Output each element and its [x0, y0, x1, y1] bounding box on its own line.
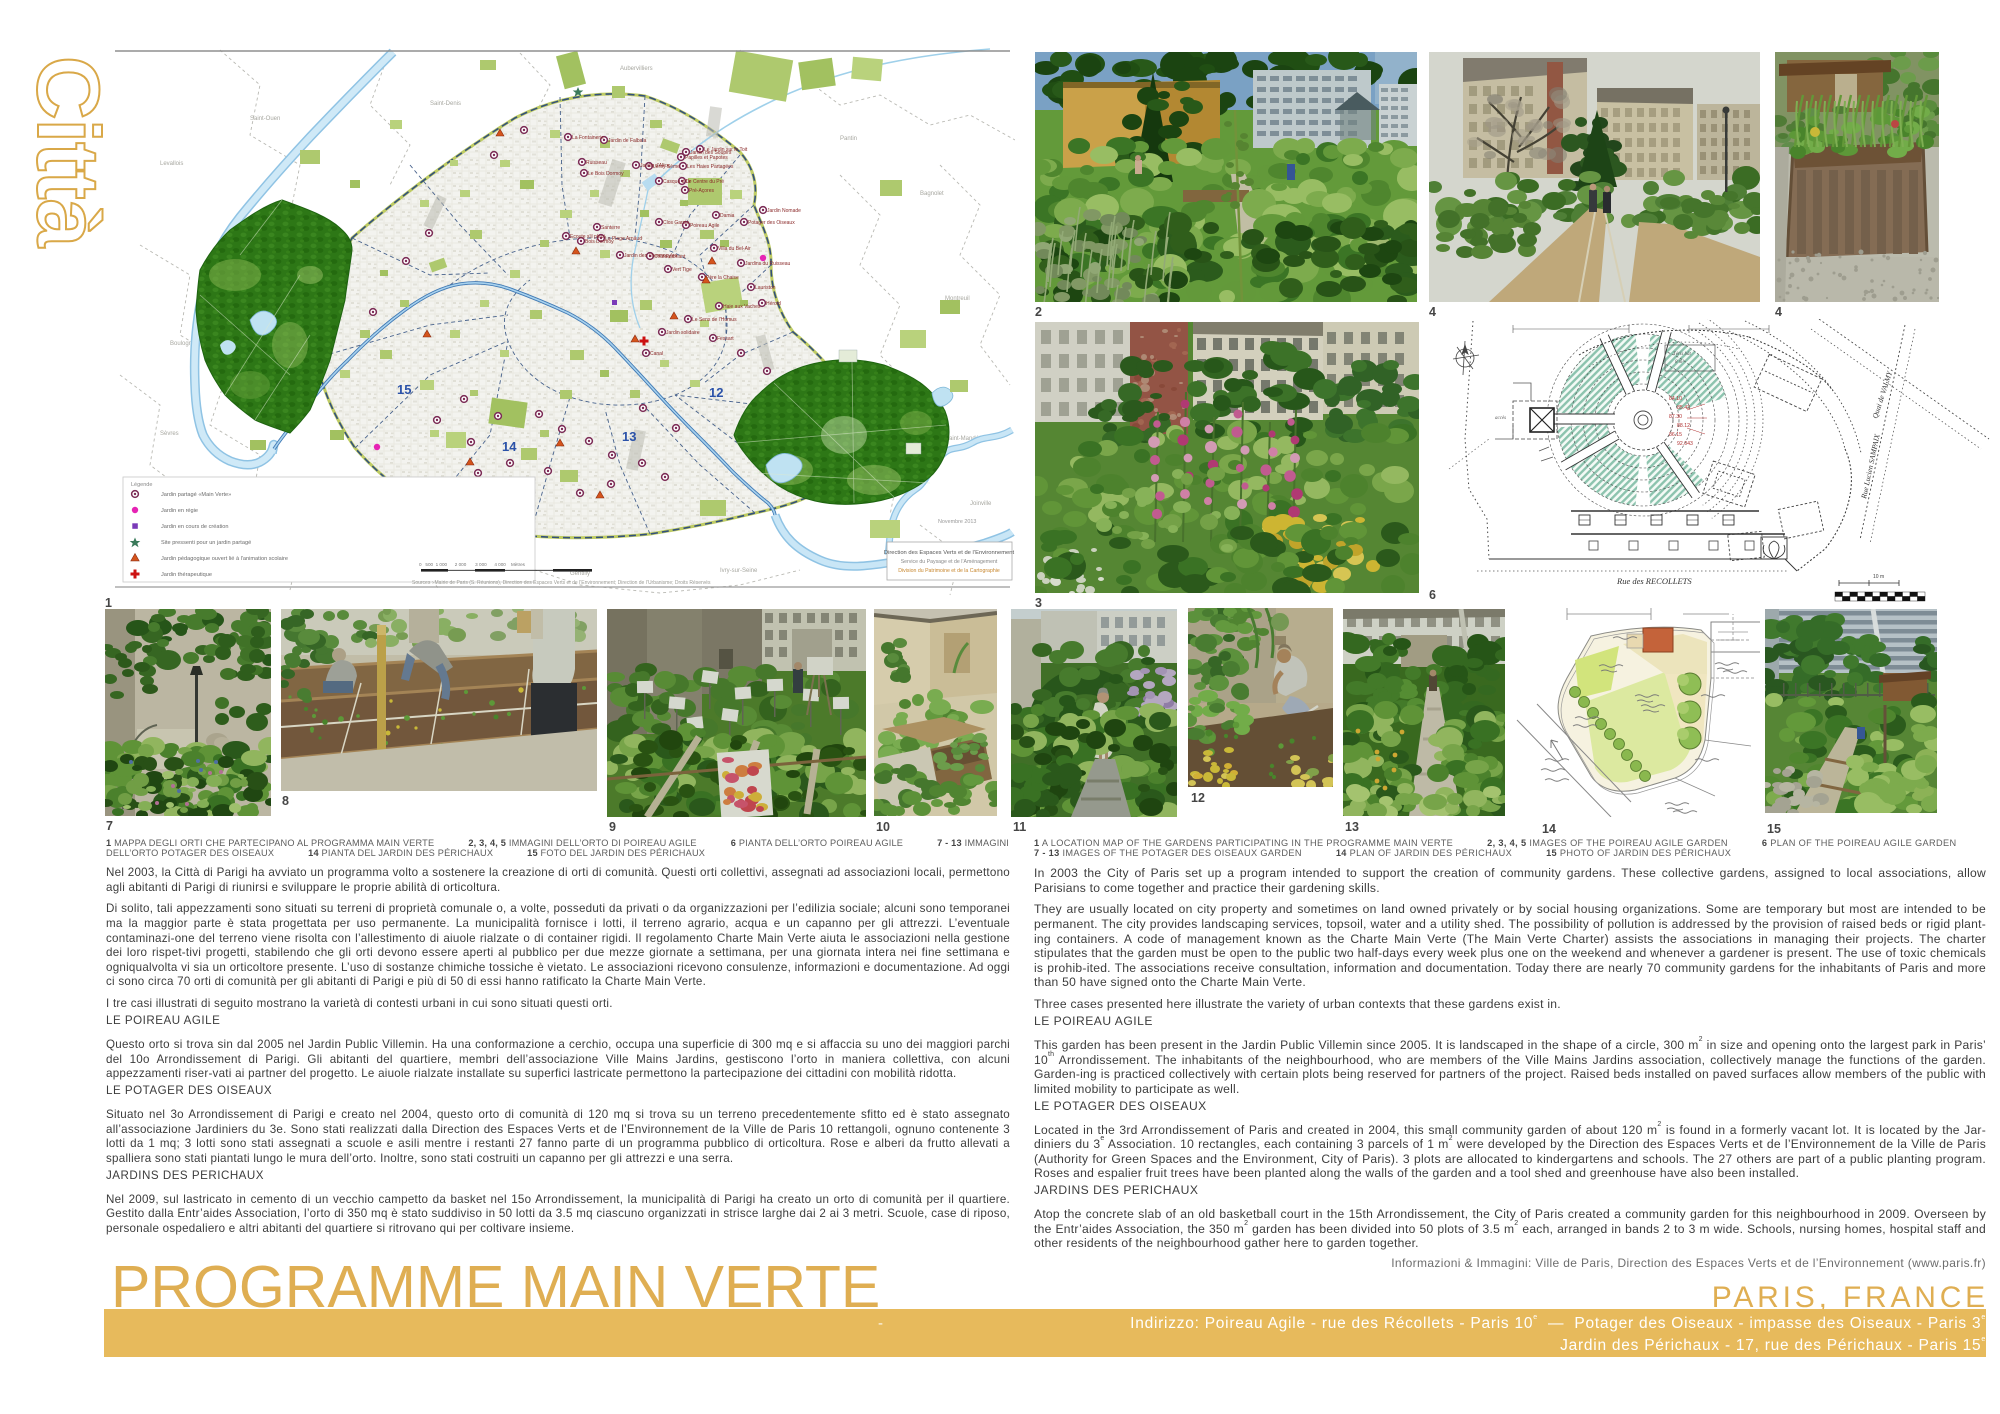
svg-text:84.10: 84.10 — [1669, 396, 1682, 402]
svg-text:Site pressenti pour un jardin: Site pressenti pour un jardin partagé — [161, 540, 251, 546]
svg-text:Jardin Nomade: Jardin Nomade — [767, 208, 801, 214]
svg-text:Canal: Canal — [650, 351, 663, 357]
svg-text:14: 14 — [502, 439, 517, 454]
svg-text:Jardin thérapeutique: Jardin thérapeutique — [161, 572, 212, 578]
svg-text:Téris bât: Téris bât — [1673, 352, 1692, 357]
svg-text:Sources : Mairie de Paris (S.: Sources : Mairie de Paris (S. Réunions),… — [412, 580, 711, 586]
svg-text:Les Haies Partagées: Les Haies Partagées — [687, 164, 734, 170]
svg-text:Service du Paysage et de l’Amé: Service du Paysage et de l’Aménagement — [901, 559, 998, 565]
svg-text:Gentilly: Gentilly — [570, 571, 590, 577]
svg-text:Bagnolet: Bagnolet — [920, 191, 944, 197]
svg-text:Fessart: Fessart — [717, 336, 734, 342]
svg-text:Novembre 2013: Novembre 2013 — [938, 519, 976, 525]
svg-text:Hérold: Hérold — [766, 301, 781, 307]
svg-text:Santerre: Santerre — [601, 225, 620, 231]
svg-text:Rue des RECOLLETS: Rue des RECOLLETS — [1616, 576, 1692, 586]
svg-text:Haie aux Vaches: Haie aux Vaches — [723, 304, 761, 310]
svg-text:Pré-Açores: Pré-Açores — [689, 188, 715, 194]
svg-text:12: 12 — [709, 385, 723, 400]
svg-text:86.15: 86.15 — [1669, 432, 1682, 438]
svg-text:Poireau Agile: Poireau Agile — [690, 223, 720, 229]
svg-text:Saint-Ouen: Saint-Ouen — [250, 116, 280, 122]
svg-text:87.30: 87.30 — [1669, 414, 1682, 420]
svg-text:Pantin: Pantin — [840, 136, 857, 142]
svg-text:Levallois: Levallois — [160, 161, 183, 167]
svg-text:92.043: 92.043 — [1677, 441, 1693, 447]
svg-text:Le Sens de l'Humus: Le Sens de l'Humus — [692, 317, 737, 323]
svg-text:Villa du Bel-Air: Villa du Bel-Air — [718, 246, 751, 252]
svg-text:Ivry-sur-Seine: Ivry-sur-Seine — [720, 568, 758, 574]
svg-text:0 500 1 000 2 000: 0 500 1 000 2 000 3 000 4 000 Mètres — [419, 562, 526, 567]
svg-text:Potager des Oiseaux: Potager des Oiseaux — [748, 220, 795, 226]
svg-text:Saint-Denis: Saint-Denis — [430, 101, 461, 107]
svg-text:15: 15 — [397, 382, 411, 397]
svg-text:Jardin partagé «Main Verte»: Jardin partagé «Main Verte» — [161, 492, 231, 498]
svg-text:85.42: 85.42 — [1677, 405, 1690, 411]
svg-text:Jardin en régie: Jardin en régie — [161, 508, 198, 514]
svg-text:Damia: Damia — [720, 213, 735, 219]
svg-text:La Fontainerie: La Fontainerie — [572, 135, 604, 141]
svg-text:Joinville: Joinville — [970, 501, 992, 507]
svg-text:Jardins du Ruisseau: Jardins du Ruisseau — [745, 261, 791, 267]
svg-text:13: 13 — [622, 429, 636, 444]
svg-text:accès: accès — [1495, 416, 1506, 421]
svg-text:Ecoute s'il pleut: Ecoute s'il pleut — [570, 234, 605, 240]
svg-text:Jardin pédagogique ouvert lié: Jardin pédagogique ouvert lié à l'animat… — [161, 556, 288, 562]
svg-text:Clos Garcia: Clos Garcia — [663, 220, 689, 226]
svg-text:Lauriston: Lauriston — [755, 285, 776, 291]
svg-text:Père la Chaise: Père la Chaise — [706, 275, 739, 281]
svg-text:Vert Tige: Vert Tige — [672, 267, 692, 273]
svg-text:Direction des Espaces Verts et: Direction des Espaces Verts et de l’Envi… — [884, 550, 1015, 556]
svg-text:Le Centre du Pré: Le Centre du Pré — [686, 179, 724, 185]
svg-text:Sèvres: Sèvres — [160, 431, 179, 437]
svg-text:Le Bois Dormoy: Le Bois Dormoy — [588, 171, 624, 177]
svg-text:Leroy Sème: Leroy Sème — [653, 164, 680, 170]
svg-text:Division du Patrimoine et de l: Division du Patrimoine et de la Cartogra… — [898, 568, 1000, 574]
svg-text:10 m: 10 m — [1873, 574, 1884, 580]
svg-text:Aubervilliers: Aubervilliers — [620, 66, 653, 72]
svg-text:Châteaubriant: Châteaubriant — [654, 254, 686, 260]
svg-text:88.12: 88.12 — [1677, 423, 1690, 429]
svg-text:Ruisseau: Ruisseau — [586, 160, 607, 166]
svg-text:Légende: Légende — [131, 482, 152, 488]
svg-text:Le Jardin sur le Toit: Le Jardin sur le Toit — [704, 147, 748, 153]
svg-text:Jardin solidaire: Jardin solidaire — [666, 330, 700, 336]
svg-text:8 m²: 8 m² — [1675, 359, 1684, 365]
svg-text:Jardin en cours de création: Jardin en cours de création — [161, 524, 228, 530]
svg-text:Jardin de Falbala: Jardin de Falbala — [608, 138, 647, 144]
